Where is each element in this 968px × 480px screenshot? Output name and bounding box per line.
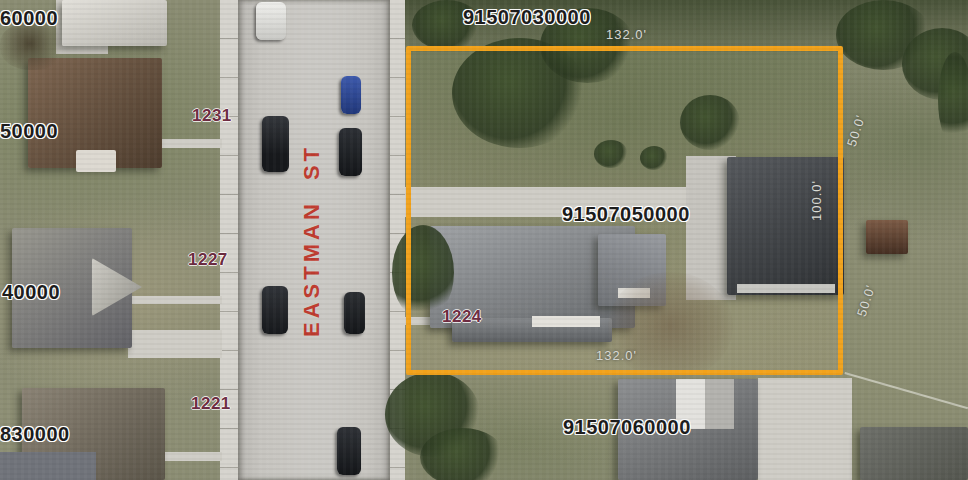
parked-car-blue: [341, 76, 361, 114]
house-number-label-1227: 1227: [188, 251, 228, 268]
dimension-label-bottom-width: 132.0': [596, 349, 637, 362]
parcel-id-label-west-upper: 50000: [0, 121, 58, 141]
dimension-label-east-depth: 100.0': [810, 171, 823, 231]
parcel-id-label-south: 91507060000: [563, 417, 691, 437]
parked-car-dark: [337, 427, 361, 475]
walkway-1221: [165, 452, 222, 461]
parcel-id-label-selected: 91507050000: [562, 204, 690, 224]
dimension-label-top-width: 132.0': [606, 28, 647, 41]
street-name-label: EASTMAN ST: [301, 147, 325, 337]
walkway-1227: [132, 296, 222, 304]
tree-canopy: [420, 428, 505, 480]
house-number-label-1221: 1221: [191, 395, 231, 412]
parked-car-dark: [262, 116, 289, 172]
parked-car-white: [256, 2, 286, 40]
driveway-1227: [128, 330, 222, 358]
aerial-map-canvas[interactable]: 91507030000 132.0' 91507050000 1224 132.…: [0, 0, 968, 480]
driveway-south-parcel: [758, 378, 852, 480]
house-number-label-1231: 1231: [192, 107, 232, 124]
building-roof-northwest-corner: [62, 0, 167, 46]
parcel-id-label-west-lower: 40000: [2, 282, 60, 302]
parked-car-dark: [339, 128, 362, 176]
roof-southwest-corner: [0, 452, 96, 480]
shrub: [0, 22, 66, 70]
shed-roof-east: [866, 220, 908, 254]
roof-southeast-corner: [860, 427, 968, 480]
parked-car-dark: [262, 286, 288, 334]
house-number-label-1224: 1224: [442, 308, 482, 325]
parked-car-dark: [344, 292, 365, 334]
parcel-id-label-west-top: 60000: [0, 8, 58, 28]
parcel-id-label-west-bottom: 830000: [0, 424, 70, 444]
walkway-1231: [162, 139, 222, 148]
parcel-id-label-north: 91507030000: [463, 7, 591, 27]
tree-canopy: [938, 52, 968, 147]
porch-1231: [76, 150, 116, 172]
